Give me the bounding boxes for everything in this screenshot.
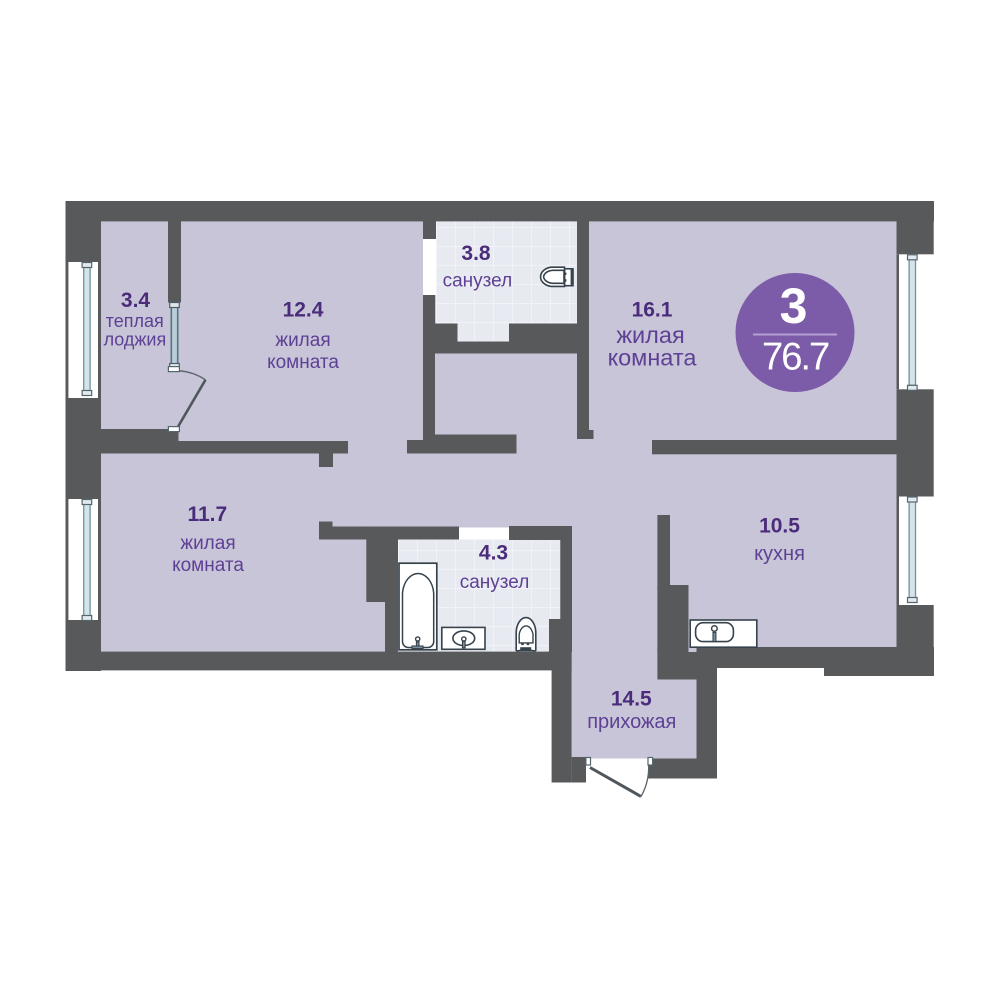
svg-text:комната: комната (267, 352, 339, 373)
svg-text:3.8: 3.8 (461, 242, 491, 265)
svg-text:лоджия: лоджия (104, 330, 167, 350)
svg-text:комната: комната (172, 555, 244, 576)
svg-text:жилая: жилая (180, 533, 235, 554)
svg-text:14.5: 14.5 (611, 688, 652, 711)
svg-text:11.7: 11.7 (187, 503, 227, 526)
svg-text:санузел: санузел (443, 270, 513, 291)
svg-text:12.4: 12.4 (283, 298, 324, 321)
svg-text:комната: комната (608, 345, 698, 371)
svg-text:3.4: 3.4 (121, 289, 151, 312)
svg-text:16.1: 16.1 (632, 298, 673, 321)
svg-text:76.7: 76.7 (762, 336, 829, 379)
svg-text:теплая: теплая (106, 311, 164, 331)
svg-text:кухня: кухня (754, 543, 805, 565)
svg-text:прихожая: прихожая (587, 711, 676, 733)
svg-text:3: 3 (780, 278, 808, 334)
svg-text:10.5: 10.5 (759, 515, 800, 538)
svg-text:жилая: жилая (275, 330, 330, 351)
svg-text:4.3: 4.3 (479, 541, 508, 564)
svg-text:санузел: санузел (460, 572, 530, 593)
